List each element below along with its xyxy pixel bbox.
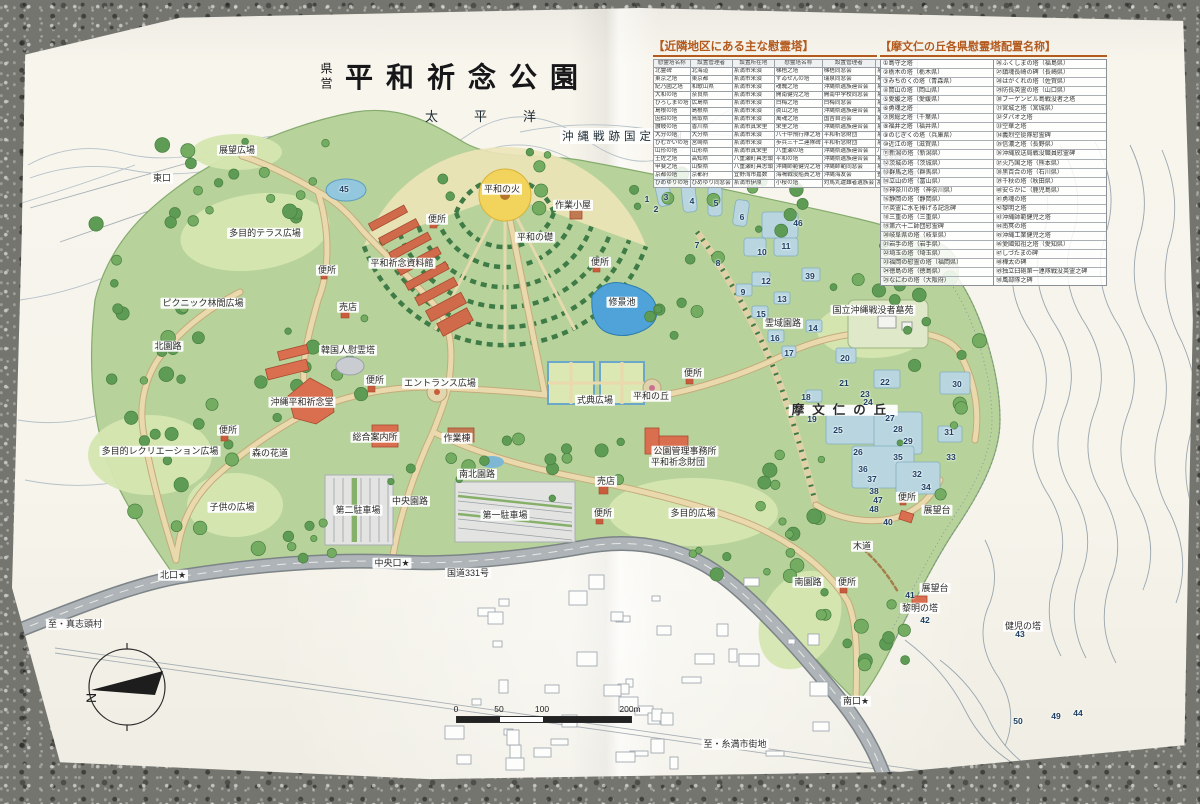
monument-number-marker: 29 [903, 436, 912, 446]
monument-number-marker: 37 [867, 474, 876, 484]
park-map-sheet: N 県営 平和祈念公園 太平洋 沖縄戦跡国定公園 【近隣地区にある主な慰霊塔】 … [0, 0, 1200, 804]
map-label: 南口★ [841, 696, 871, 707]
map-title: 県営 平和祈念公園 [318, 56, 591, 96]
map-label: 多目的レクリエーション広場 [100, 446, 221, 457]
legend-entry: ㊱沖縄放送局戦没職員慰霊碑 [994, 150, 1106, 159]
legend-cell: 沖縄県遺族連合会 [822, 108, 875, 116]
map-label: 多目的テラス広場 [227, 228, 303, 239]
monument-number-marker: 21 [839, 378, 848, 388]
legend-entry: ㉛宮城之塔（宮城県） [994, 105, 1106, 114]
legend-entry: ㊺沖縄工業健児之塔 [994, 232, 1106, 241]
legend-entry: ㉚ブーゲンビル島戦没者之塔 [994, 96, 1106, 105]
legend-cell: 梯梧之塔 [774, 68, 822, 76]
monument-number-marker: 5 [714, 198, 719, 208]
map-label: 作業棟 [441, 433, 472, 444]
legend-entry: ㉓福岡の慰霊の塔（福岡県） [881, 259, 993, 268]
scale-tick-label: 50 [494, 704, 503, 714]
legend-row: 山形の塔山形県糸満市真栄里八重瀬の塔沖縄県遺族連合会八重瀬町富盛 [654, 148, 918, 156]
monument-number-marker: 22 [880, 377, 889, 387]
monument-number-marker: 33 [946, 452, 955, 462]
monument-number-marker: 17 [784, 348, 793, 358]
scale-tick-label: 200m [619, 704, 640, 714]
legend-row: ひむかいの塔宮崎県糸満市米須歩兵三十二連隊碑平和祈念財団糸満市真栄里 [654, 140, 918, 148]
map-label: ピクニック林間広場 [160, 298, 245, 309]
map-label: 展望台 [919, 583, 950, 594]
map-label: 森の花道 [250, 448, 290, 459]
map-label: 子供の広場 [207, 502, 256, 513]
legend-cell: 和歌山県 [690, 84, 732, 92]
monument-number-marker: 24 [863, 397, 872, 407]
legend-cell: 香川県 [690, 124, 732, 132]
map-label: 中央園路 [390, 496, 430, 507]
legend-entry: ㊲火乃国之塔（熊本県） [994, 160, 1106, 169]
legend-cell: 沖縄県遺族連合会 [822, 124, 875, 132]
legend-cell: 糸満市真栄里 [732, 148, 774, 156]
legend-cell: 瑞泉同窓会 [822, 76, 875, 84]
scale-tick-label: 0 [454, 704, 459, 714]
legend-entry: ㊷黎明之塔 [994, 205, 1106, 214]
legend-cell: 平和の塔 [774, 156, 822, 164]
map-label: 売店 [337, 302, 359, 313]
monument-number-marker: 48 [869, 504, 878, 514]
legend-entry: ⑤愛媛之塔（愛媛県） [881, 96, 993, 105]
scale-bar: 050100200m [450, 704, 640, 736]
monument-number-marker: 6 [740, 212, 745, 222]
map-label: 平和祈念財団 [649, 457, 707, 468]
legend-column-header: 慰霊塔名称 [654, 60, 691, 68]
legend-neighbor-table: 慰霊塔名称設置管理者設置所在地慰霊塔名称設置管理者設置所在地 北霊碑北海道糸満市… [653, 59, 918, 188]
legend-mabuni-monuments: 【摩文仁の丘各県慰霊塔配置名称】 ①島守之塔②栃木の塔（栃木県）③みちのくの塔（… [880, 38, 1107, 286]
map-label: 至・糸満市街地 [701, 739, 768, 750]
legend-neighbor-monuments: 【近隣地区にある主な慰霊塔】 慰霊塔名称設置管理者設置所在地慰霊塔名称設置管理者… [653, 38, 877, 188]
legend-row: 甲斐之塔山梨県八重瀬町具志頭沖縄師範健児之塔沖縄師範同窓会糸満市山城 [654, 164, 918, 172]
legend-cell: 糸満市米須 [732, 84, 774, 92]
legend-cell: ずゐせんの塔 [774, 76, 822, 84]
legend-row: 土佐之塔高知県八重瀬町具志頭平和の塔沖縄県遺族連合会糸満市喜屋武 [654, 156, 918, 164]
legend-cell: 糸満市米須 [732, 100, 774, 108]
monument-number-marker: 34 [921, 482, 930, 492]
legend-entry: ①島守之塔 [881, 60, 993, 69]
legend-entry: ⑬群馬之塔（群馬県） [881, 169, 993, 178]
legend-row: 北霊碑北海道糸満市米須梯梧之塔梯梧同窓会糸満市米須 [654, 68, 918, 76]
legend-cell: 小桜の塔 [774, 180, 822, 188]
legend-entry: ③みちのくの塔（青森県） [881, 78, 993, 87]
legend-cell: 平和祈念財団 [822, 140, 875, 148]
legend-cell: 甲斐之塔 [654, 164, 691, 172]
legend-cell: 栄里之塔 [774, 124, 822, 132]
monument-number-marker: 28 [893, 424, 902, 434]
legend-entry: ⑲第六十二師団慰霊碑 [881, 223, 993, 232]
map-label: 東口 [151, 173, 173, 184]
legend-cell: 八重瀬の塔 [774, 148, 822, 156]
legend-cell: 開南健児之塔 [774, 92, 822, 100]
legend-cell: 沖縄師範同窓会 [822, 164, 875, 172]
legend-cell: 宮崎県 [690, 140, 732, 148]
pacific-ocean-label: 太平洋 [425, 106, 572, 125]
monument-number-marker: 46 [793, 218, 802, 228]
map-label: 売店 [595, 476, 617, 487]
legend-entry: ⑮神奈川の塔（神奈川県） [881, 187, 993, 196]
legend-cell: 平和祈念財団 [822, 132, 875, 140]
legend-cell: 宜野湾市嘉数 [732, 172, 774, 180]
map-label: 黎明の塔 [900, 603, 940, 614]
legend-entry: ㊻愛國知祖之塔（愛知県） [994, 241, 1106, 250]
legend-row: 讃岐の塔香川県糸満市真栄里栄里之塔沖縄県遺族連合会糸満市真栄里 [654, 124, 918, 132]
legend-cell: 島根県 [690, 108, 732, 116]
legend-cell: ひめゆりの塔 [654, 180, 691, 188]
map-label: 総合案内所 [350, 432, 399, 443]
legend-cell: 白梅同窓会 [822, 100, 875, 108]
legend-cell: 土佐之塔 [654, 156, 691, 164]
legend-cell: 国吉自治会 [822, 116, 875, 124]
map-label: 修景池 [606, 297, 637, 308]
monument-number-marker: 35 [893, 452, 902, 462]
legend-cell: 紀乃國之塔 [654, 84, 691, 92]
legend-cell: 八重瀬町具志頭 [732, 164, 774, 172]
monument-number-marker: 43 [1015, 629, 1024, 639]
map-label: 至・真志頭村 [46, 619, 104, 630]
monument-number-marker: 27 [885, 413, 894, 423]
map-label: 平和祈念資料館 [368, 258, 435, 269]
monument-number-marker: 13 [777, 294, 786, 304]
legend-column-header: 慰霊塔名称 [774, 60, 822, 68]
map-label: 展望台 [921, 505, 952, 516]
monument-number-marker: 10 [757, 247, 766, 257]
map-label: 第二駐車場 [333, 505, 382, 516]
legend-cell: 広島県 [690, 100, 732, 108]
map-label: 平和の火 [482, 184, 522, 195]
map-label: 南北園路 [457, 469, 497, 480]
legend-row: 紀乃國之塔和歌山県糸満市米須魂魄之塔沖縄県遺族連合会糸満市米須 [654, 84, 918, 92]
map-label: 平和の礎 [515, 232, 555, 243]
legend-cell: 大分県 [690, 132, 732, 140]
legend-entry: ⑩近江の塔（滋賀県） [881, 141, 993, 150]
legend-cell: ひろしまの塔 [654, 100, 691, 108]
monument-number-marker: 18 [801, 392, 810, 402]
monument-number-marker: 20 [840, 353, 849, 363]
legend-column-header: 設置管理者 [690, 60, 732, 68]
legend-cell: 北霊碑 [654, 68, 691, 76]
compass-north-label: N [83, 693, 99, 703]
legend-entry: ㉙防長英霊の塔（山口県） [994, 87, 1106, 96]
monument-number-marker: 11 [782, 241, 791, 251]
monument-number-marker: 45 [339, 184, 348, 194]
legend-entry: ㊶勇魂の塔 [994, 196, 1106, 205]
legend-cell: 対馬丸遭難者遺族会 [822, 180, 875, 188]
legend-cell: 大和の塔 [654, 92, 691, 100]
peace-flame [479, 169, 531, 221]
photo-of-paper-park-map: { "title": {"prefix": "県営", "main": "平和祈… [0, 0, 1200, 804]
legend-cell: 沖縄県遺族連合会 [822, 148, 875, 156]
legend-cell: 糸満市米須 [732, 108, 774, 116]
legend-cell: 萬魂之塔 [774, 116, 822, 124]
monument-number-marker: 19 [807, 414, 816, 424]
map-label: 式典広場 [575, 395, 615, 406]
legend-cell: 山梨県 [690, 164, 732, 172]
legend-cell: 沖縄師範健児之塔 [774, 164, 822, 172]
monument-number-marker: 39 [805, 271, 814, 281]
legend-cell: 沖縄県遺族連合会 [822, 84, 875, 92]
legend-cell: 沖縄海友会 [822, 172, 875, 180]
map-label: 摩文仁の丘 [789, 405, 898, 416]
legend-cell: 白梅之塔 [774, 100, 822, 108]
legend-mabuni-title: 【摩文仁の丘各県慰霊塔配置名称】 [880, 38, 1107, 57]
monument-number-marker: 36 [858, 464, 867, 474]
legend-cell: 京都の塔 [654, 172, 691, 180]
map-label: 便所 [217, 425, 239, 436]
legend-cell: 糸満市伊原 [732, 180, 774, 188]
legend-cell: 眞山之塔 [774, 108, 822, 116]
legend-entry: ㉗鎮魂長崎の碑（長崎県） [994, 69, 1106, 78]
legend-column-header: 設置所在地 [732, 60, 774, 68]
legend-entry: ⑰英霊に水を捧げる記念碑 [881, 205, 993, 214]
legend-row: ひろしまの塔広島県糸満市米須白梅之塔白梅同窓会糸満市国吉 [654, 100, 918, 108]
map-label: 展望広場 [217, 145, 257, 156]
legend-entry: ⑫茨城の塔（茨城県） [881, 160, 993, 169]
map-label: 便所 [896, 492, 918, 503]
monument-number-marker: 50 [1013, 716, 1022, 726]
legend-cell: 東京之塔 [654, 76, 691, 84]
legend-cell: 高知県 [690, 156, 732, 164]
monument-number-marker: 2 [654, 204, 659, 214]
map-label: 便所 [682, 368, 704, 379]
legend-entry: ㊳黒百合の塔（石川県） [994, 169, 1106, 178]
legend-row: 東京之塔東京都糸満市米須ずゐせんの塔瑞泉同窓会糸満市米須 [654, 76, 918, 84]
legend-cell: 海鳴戦没船員之塔 [774, 172, 822, 180]
legend-cell: 糸満市米須 [732, 140, 774, 148]
map-label: 公園管理事務所 [651, 446, 718, 457]
map-label: 便所 [589, 257, 611, 268]
legend-row: 大和の塔奈良県糸満市米須開南健児之塔開南中学校同窓会糸満市米須 [654, 92, 918, 100]
monument-number-marker: 14 [808, 323, 817, 333]
legend-cell: ひめゆり同窓会 [690, 180, 732, 188]
legend-entry: ㉝空華之塔 [994, 123, 1106, 132]
legend-row: 島根の塔島根県糸満市米須眞山之塔沖縄県遺族連合会糸満市真栄里 [654, 108, 918, 116]
legend-cell: 糸満市真栄里 [732, 124, 774, 132]
legend-entry: ㊵安らかに（鹿児島県） [994, 187, 1106, 196]
legend-entry: ④岡山の塔（岡山県） [881, 87, 993, 96]
map-label: エントランス広場 [402, 378, 478, 389]
legend-mabuni-table: ①島守之塔②栃木の塔（栃木県）③みちのくの塔（青森県）④岡山の塔（岡山県）⑤愛媛… [880, 59, 1107, 286]
map-label: 便所 [592, 508, 614, 519]
legend-column-header: 設置管理者 [822, 60, 875, 68]
legend-cell: 讃岐の塔 [654, 124, 691, 132]
legend-cell: 島根の塔 [654, 108, 691, 116]
legend-entry: ⑳岐阜県の塔（岐阜県） [881, 232, 993, 241]
legend-cell: 糸満市米須 [732, 116, 774, 124]
scale-bar-segments [456, 716, 632, 723]
legend-entry: ⑥勇魂之塔 [881, 105, 993, 114]
legend-entry: ②栃木の塔（栃木県） [881, 69, 993, 78]
monument-number-marker: 32 [912, 469, 921, 479]
legend-cell: 沖縄県遺族連合会 [822, 156, 875, 164]
legend-cell: 八重瀬町具志頭 [732, 156, 774, 164]
legend-cell: 鳥取県 [690, 116, 732, 124]
monument-number-marker: 30 [952, 379, 961, 389]
legend-entry: ㊹南冥の塔 [994, 223, 1106, 232]
legend-entry: ㊸沖縄師範健児之塔 [994, 214, 1106, 223]
legend-entry: ⑦房総之塔（千葉県） [881, 114, 993, 123]
map-label: 南園路 [792, 577, 823, 588]
scale-tick-label: 100 [535, 704, 549, 714]
map-label: 便所 [836, 577, 858, 588]
legend-cell: ひむかいの塔 [654, 140, 691, 148]
legend-entry: ⑪新潟の塔（新潟県） [881, 150, 993, 159]
monument-number-marker: 8 [716, 258, 721, 268]
compass-needle [91, 671, 163, 695]
monument-number-marker: 31 [944, 427, 953, 437]
legend-cell: 糸満市米須 [732, 92, 774, 100]
legend-entry: ㉔徳島の塔（徳島県） [881, 268, 993, 277]
legend-cell: 魂魄之塔 [774, 84, 822, 92]
legend-cell: 歩兵三十二連隊碑 [774, 140, 822, 148]
legend-entry: ㉒埼玉の塔（埼玉県） [881, 250, 993, 259]
monument-number-marker: 3 [664, 192, 669, 202]
map-label: 北園路 [152, 341, 183, 352]
legend-cell: 糸満市米須 [732, 68, 774, 76]
page-title: 平和祈念公園 [345, 56, 591, 96]
map-label: 沖縄平和祈念堂 [268, 397, 335, 408]
monument-number-marker: 7 [695, 240, 700, 250]
legend-neighbor-title: 【近隣地区にある主な慰霊塔】 [653, 38, 877, 57]
legend-cell: 因伯の塔 [654, 116, 691, 124]
legend-entry: ㊿風部隊之碑 [994, 277, 1106, 285]
legend-cell: 山形の塔 [654, 148, 691, 156]
monument-number-marker: 16 [770, 333, 779, 343]
compass-rose: N [83, 643, 165, 731]
map-label: 中央口★ [372, 558, 411, 569]
map-label: 国立沖縄戦没者墓苑 [830, 305, 915, 316]
legend-entry: ㊼しづたまの碑 [994, 250, 1106, 259]
legend-entry: ㊴千秋の塔（秋田県） [994, 178, 1106, 187]
map-label: 国道331号 [445, 568, 491, 579]
legend-cell: 京都府 [690, 172, 732, 180]
map-label: 作業小屋 [553, 200, 593, 211]
legend-entry: ⑧福井之塔（福井県） [881, 123, 993, 132]
title-prefecture-prefix: 県営 [318, 62, 335, 92]
monument-number-marker: 9 [741, 287, 746, 297]
monument-number-marker: 40 [883, 517, 892, 527]
legend-cell: 大分の塔 [654, 132, 691, 140]
map-label: 木道 [851, 541, 873, 552]
map-label: 多目的広場 [668, 508, 717, 519]
legend-row: 大分の塔大分県糸満市米須八十中飛行隊之塔平和祈念財団糸満市真栄里 [654, 132, 918, 140]
monument-number-marker: 12 [761, 276, 770, 286]
legend-cell: 北海道 [690, 68, 732, 76]
legend-cell: 梯梧同窓会 [822, 68, 875, 76]
legend-entry: ⑭立山の塔（富山県） [881, 178, 993, 187]
legend-cell: 開南中学校同窓会 [822, 92, 875, 100]
map-label: 北口★ [158, 570, 188, 581]
legend-cell: 八十中飛行隊之塔 [774, 132, 822, 140]
monument-number-marker: 25 [833, 425, 842, 435]
legend-entry: ㊽樺太の碑 [994, 259, 1106, 268]
legend-entry: ㉜ダバオ之塔 [994, 114, 1106, 123]
legend-cell: 奈良県 [690, 92, 732, 100]
legend-entry: ㊾独立臼砲第一連隊戦没英霊之碑 [994, 268, 1106, 277]
monument-number-marker: 44 [1073, 708, 1082, 718]
map-label: 韓国人慰霊塔 [319, 345, 377, 356]
monument-number-marker: 41 [905, 590, 914, 600]
monument-number-marker: 49 [1051, 711, 1060, 721]
legend-entry: ㉖ふくしまの塔（福島県） [994, 60, 1106, 69]
legend-cell: 東京都 [690, 76, 732, 84]
legend-cell: 糸満市米須 [732, 132, 774, 140]
legend-entry: ㉘はがくれの塔（佐賀県） [994, 78, 1106, 87]
legend-cell: 山形県 [690, 148, 732, 156]
monument-number-marker: 42 [920, 615, 929, 625]
legend-entry: ㉟信濃之塔（長野県） [994, 141, 1106, 150]
legend-entry: ㉕なにわの塔（大阪府） [881, 277, 993, 285]
legend-row: ひめゆりの塔ひめゆり同窓会糸満市伊原小桜の塔対馬丸遭難者遺族会那覇市若狭 [654, 180, 918, 188]
legend-entry: ⑯静岡の塔（静岡県） [881, 196, 993, 205]
legend-entry: ⑱三重の塔（三重県） [881, 214, 993, 223]
legend-row: 因伯の塔鳥取県糸満市米須萬魂之塔国吉自治会糸満市国吉 [654, 116, 918, 124]
map-label: 便所 [426, 214, 448, 225]
map-label: 便所 [364, 375, 386, 386]
legend-entry: ㉞義烈空挺隊慰霊碑 [994, 132, 1106, 141]
monument-number-marker: 26 [853, 447, 862, 457]
monument-number-marker: 1 [645, 194, 650, 204]
monument-number-marker: 15 [756, 309, 765, 319]
map-label: 平和の丘 [631, 391, 671, 402]
legend-row: 京都の塔京都府宜野湾市嘉数海鳴戦没船員之塔沖縄海友会豊見城市豊見城 [654, 172, 918, 180]
map-label: 便所 [316, 265, 338, 276]
legend-entry: ⑨のじぎくの塔（兵庫県） [881, 132, 993, 141]
legend-entry: ㉑岩手の塔（岩手県） [881, 241, 993, 250]
legend-cell: 糸満市米須 [732, 76, 774, 84]
map-label: 第一駐車場 [480, 510, 529, 521]
monument-number-marker: 4 [690, 196, 695, 206]
map-label: 霊域園路 [763, 318, 803, 329]
